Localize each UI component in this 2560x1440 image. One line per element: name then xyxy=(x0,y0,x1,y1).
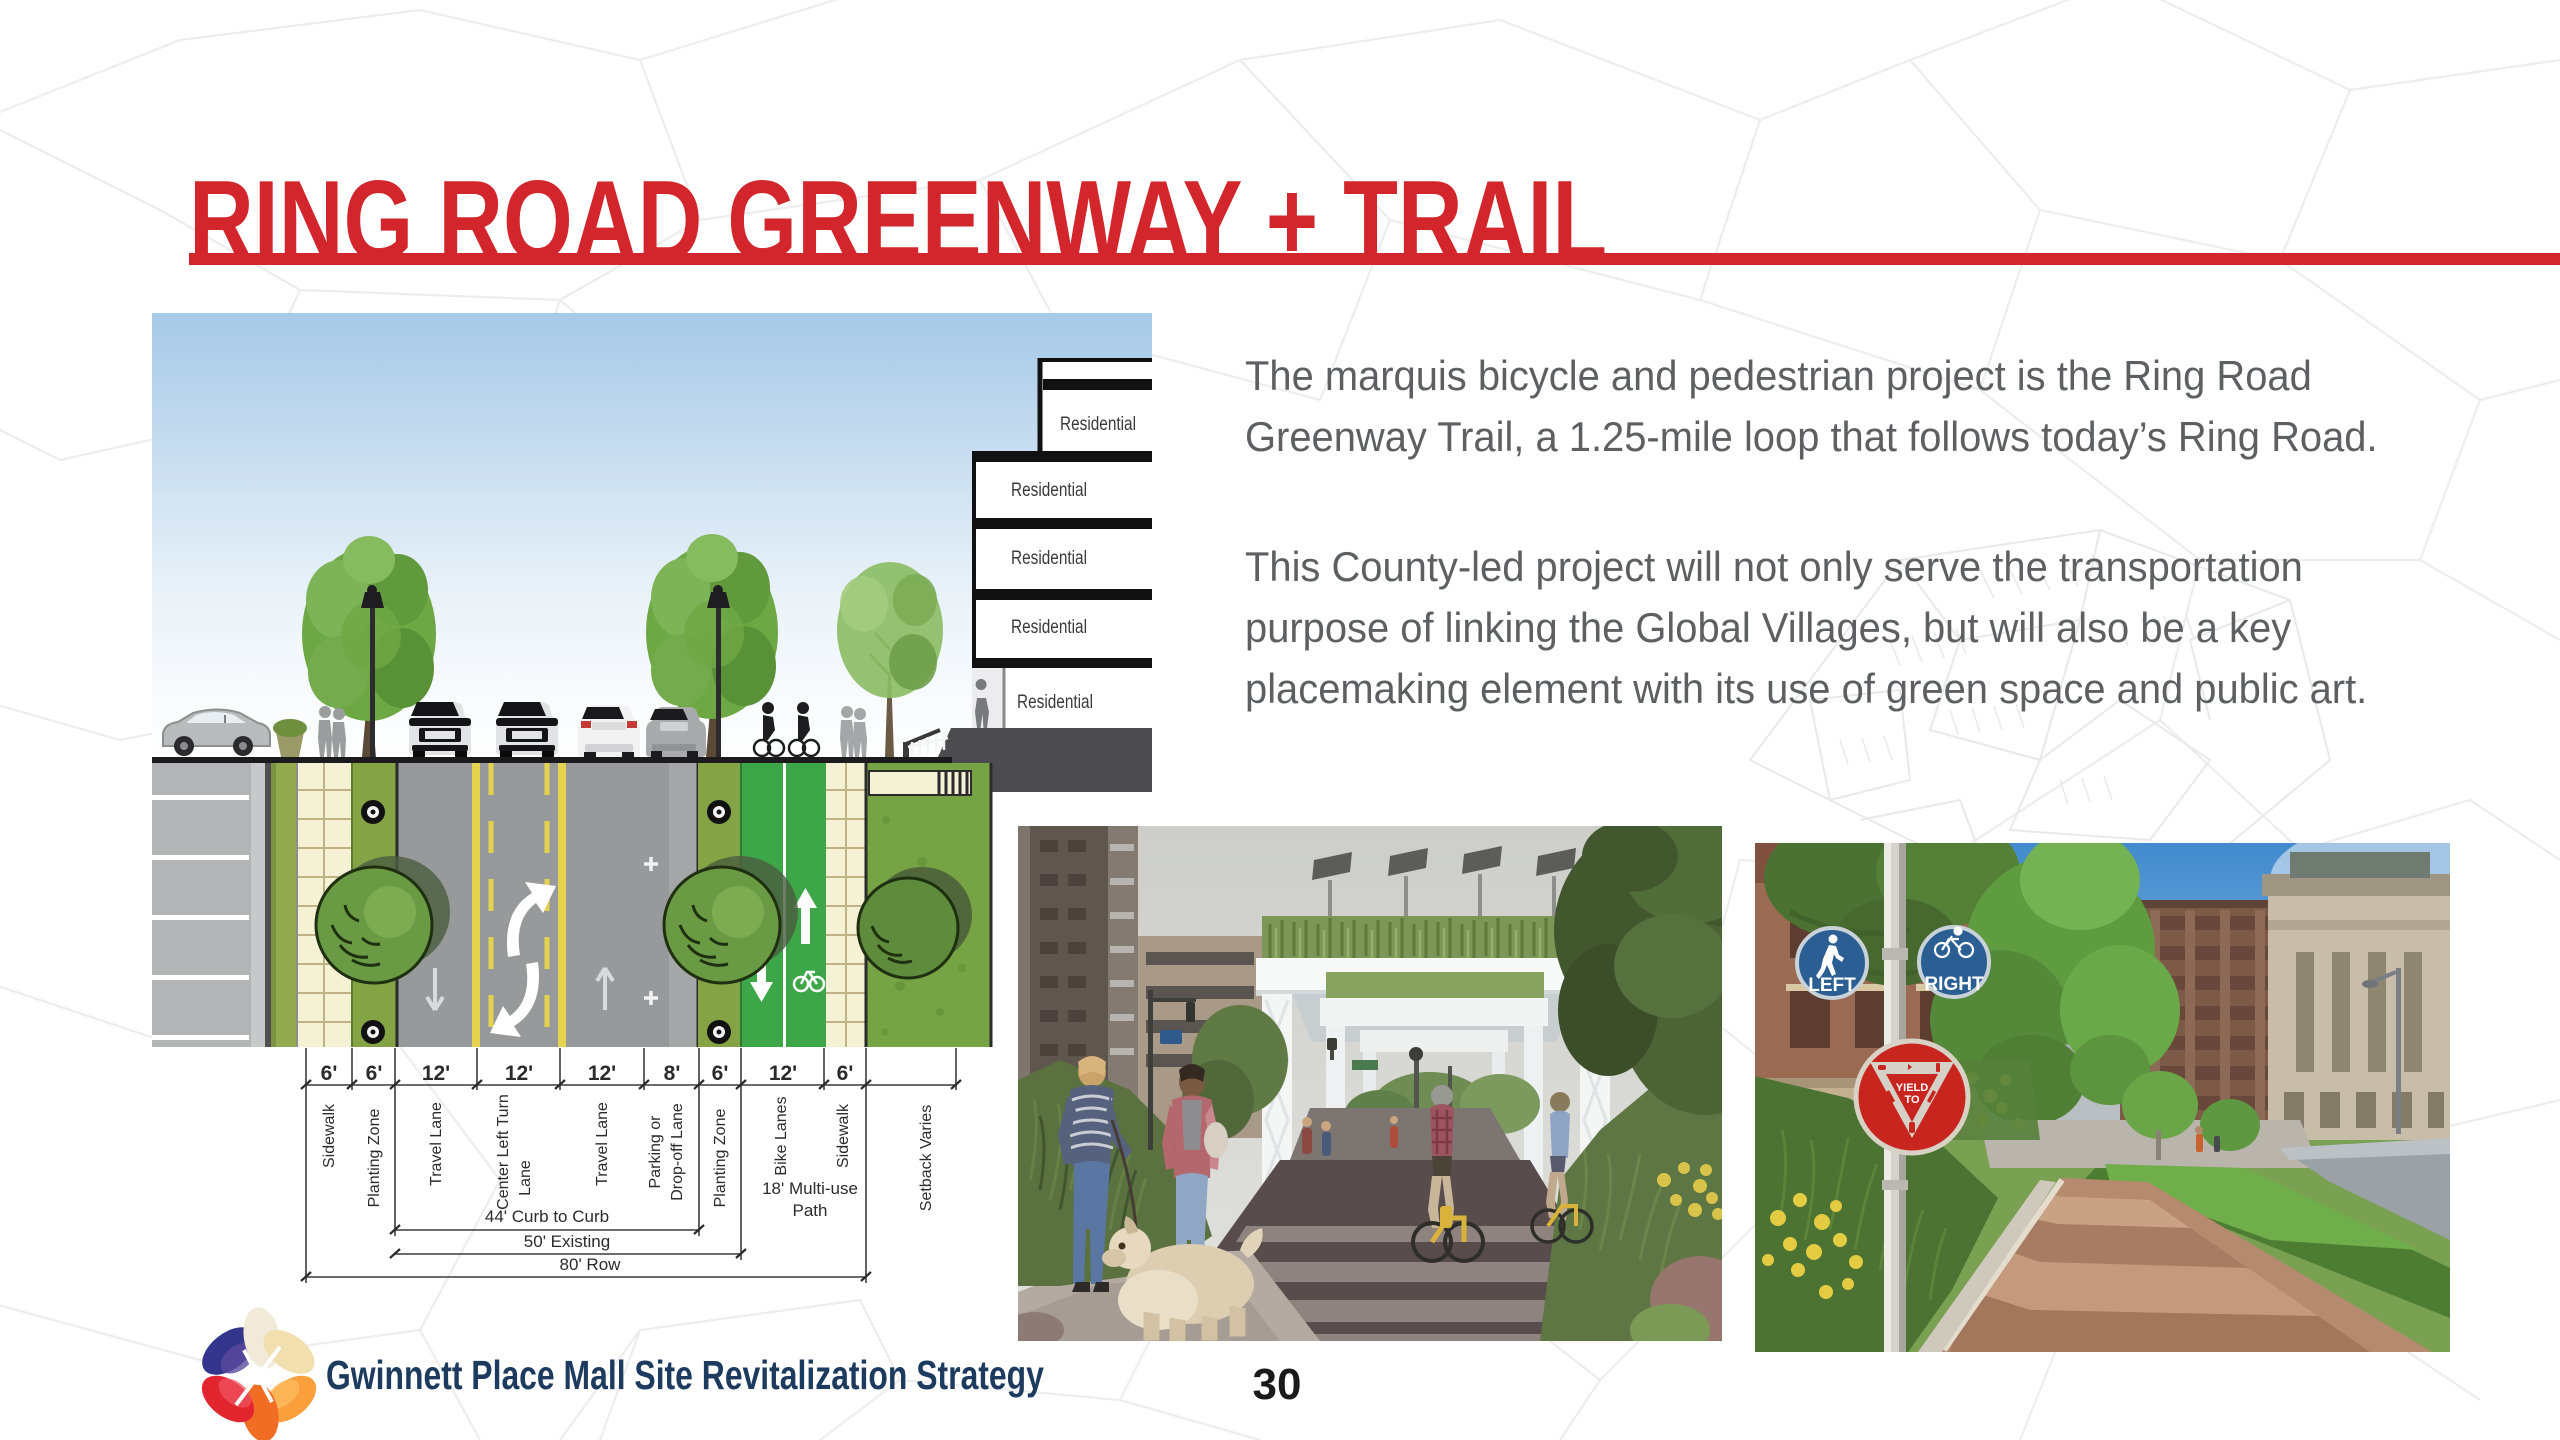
svg-text:12': 12' xyxy=(588,1062,616,1085)
svg-text:Planting Zone: Planting Zone xyxy=(712,1109,729,1208)
svg-text:Path: Path xyxy=(793,1201,828,1220)
svg-text:Travel Lane: Travel Lane xyxy=(428,1102,445,1186)
svg-text:RIGHT: RIGHT xyxy=(1924,974,1984,995)
svg-text:Residential: Residential xyxy=(1011,617,1087,638)
svg-text:8': 8' xyxy=(664,1062,681,1085)
svg-text:Lane: Lane xyxy=(517,1160,534,1196)
svg-text:50' Existing: 50' Existing xyxy=(524,1232,610,1251)
svg-text:YIELD: YIELD xyxy=(1896,1082,1928,1094)
svg-text:6': 6' xyxy=(366,1062,383,1085)
svg-text:Sidewalk: Sidewalk xyxy=(321,1103,338,1168)
svg-text:6': 6' xyxy=(837,1062,854,1085)
svg-text:TO: TO xyxy=(1904,1094,1920,1106)
svg-text:6': 6' xyxy=(712,1062,729,1085)
svg-text:Parking or: Parking or xyxy=(647,1115,664,1189)
svg-text:Residential: Residential xyxy=(1011,480,1087,501)
svg-text:18' Multi-use: 18' Multi-use xyxy=(762,1179,858,1198)
svg-text:12': 12' xyxy=(422,1062,450,1085)
svg-text:Bike Lanes: Bike Lanes xyxy=(773,1096,790,1175)
svg-text:Setback Varies: Setback Varies xyxy=(918,1105,935,1211)
svg-text:Residential: Residential xyxy=(1060,414,1136,435)
svg-text:Sidewalk: Sidewalk xyxy=(835,1103,852,1168)
svg-text:6': 6' xyxy=(321,1062,338,1085)
svg-text:Drop-off Lane: Drop-off Lane xyxy=(669,1103,686,1201)
svg-text:80' Row: 80' Row xyxy=(560,1255,622,1274)
svg-text:Travel Lane: Travel Lane xyxy=(594,1102,611,1186)
svg-text:12': 12' xyxy=(505,1062,533,1085)
svg-text:12': 12' xyxy=(769,1062,797,1085)
svg-text:Center Left Turn: Center Left Turn xyxy=(495,1094,512,1210)
svg-text:Residential: Residential xyxy=(1017,692,1093,713)
svg-text:Planting Zone: Planting Zone xyxy=(366,1109,383,1208)
svg-text:Residential: Residential xyxy=(1011,548,1087,569)
svg-text:LEFT: LEFT xyxy=(1808,975,1856,996)
svg-text:44' Curb to Curb: 44' Curb to Curb xyxy=(485,1207,609,1226)
